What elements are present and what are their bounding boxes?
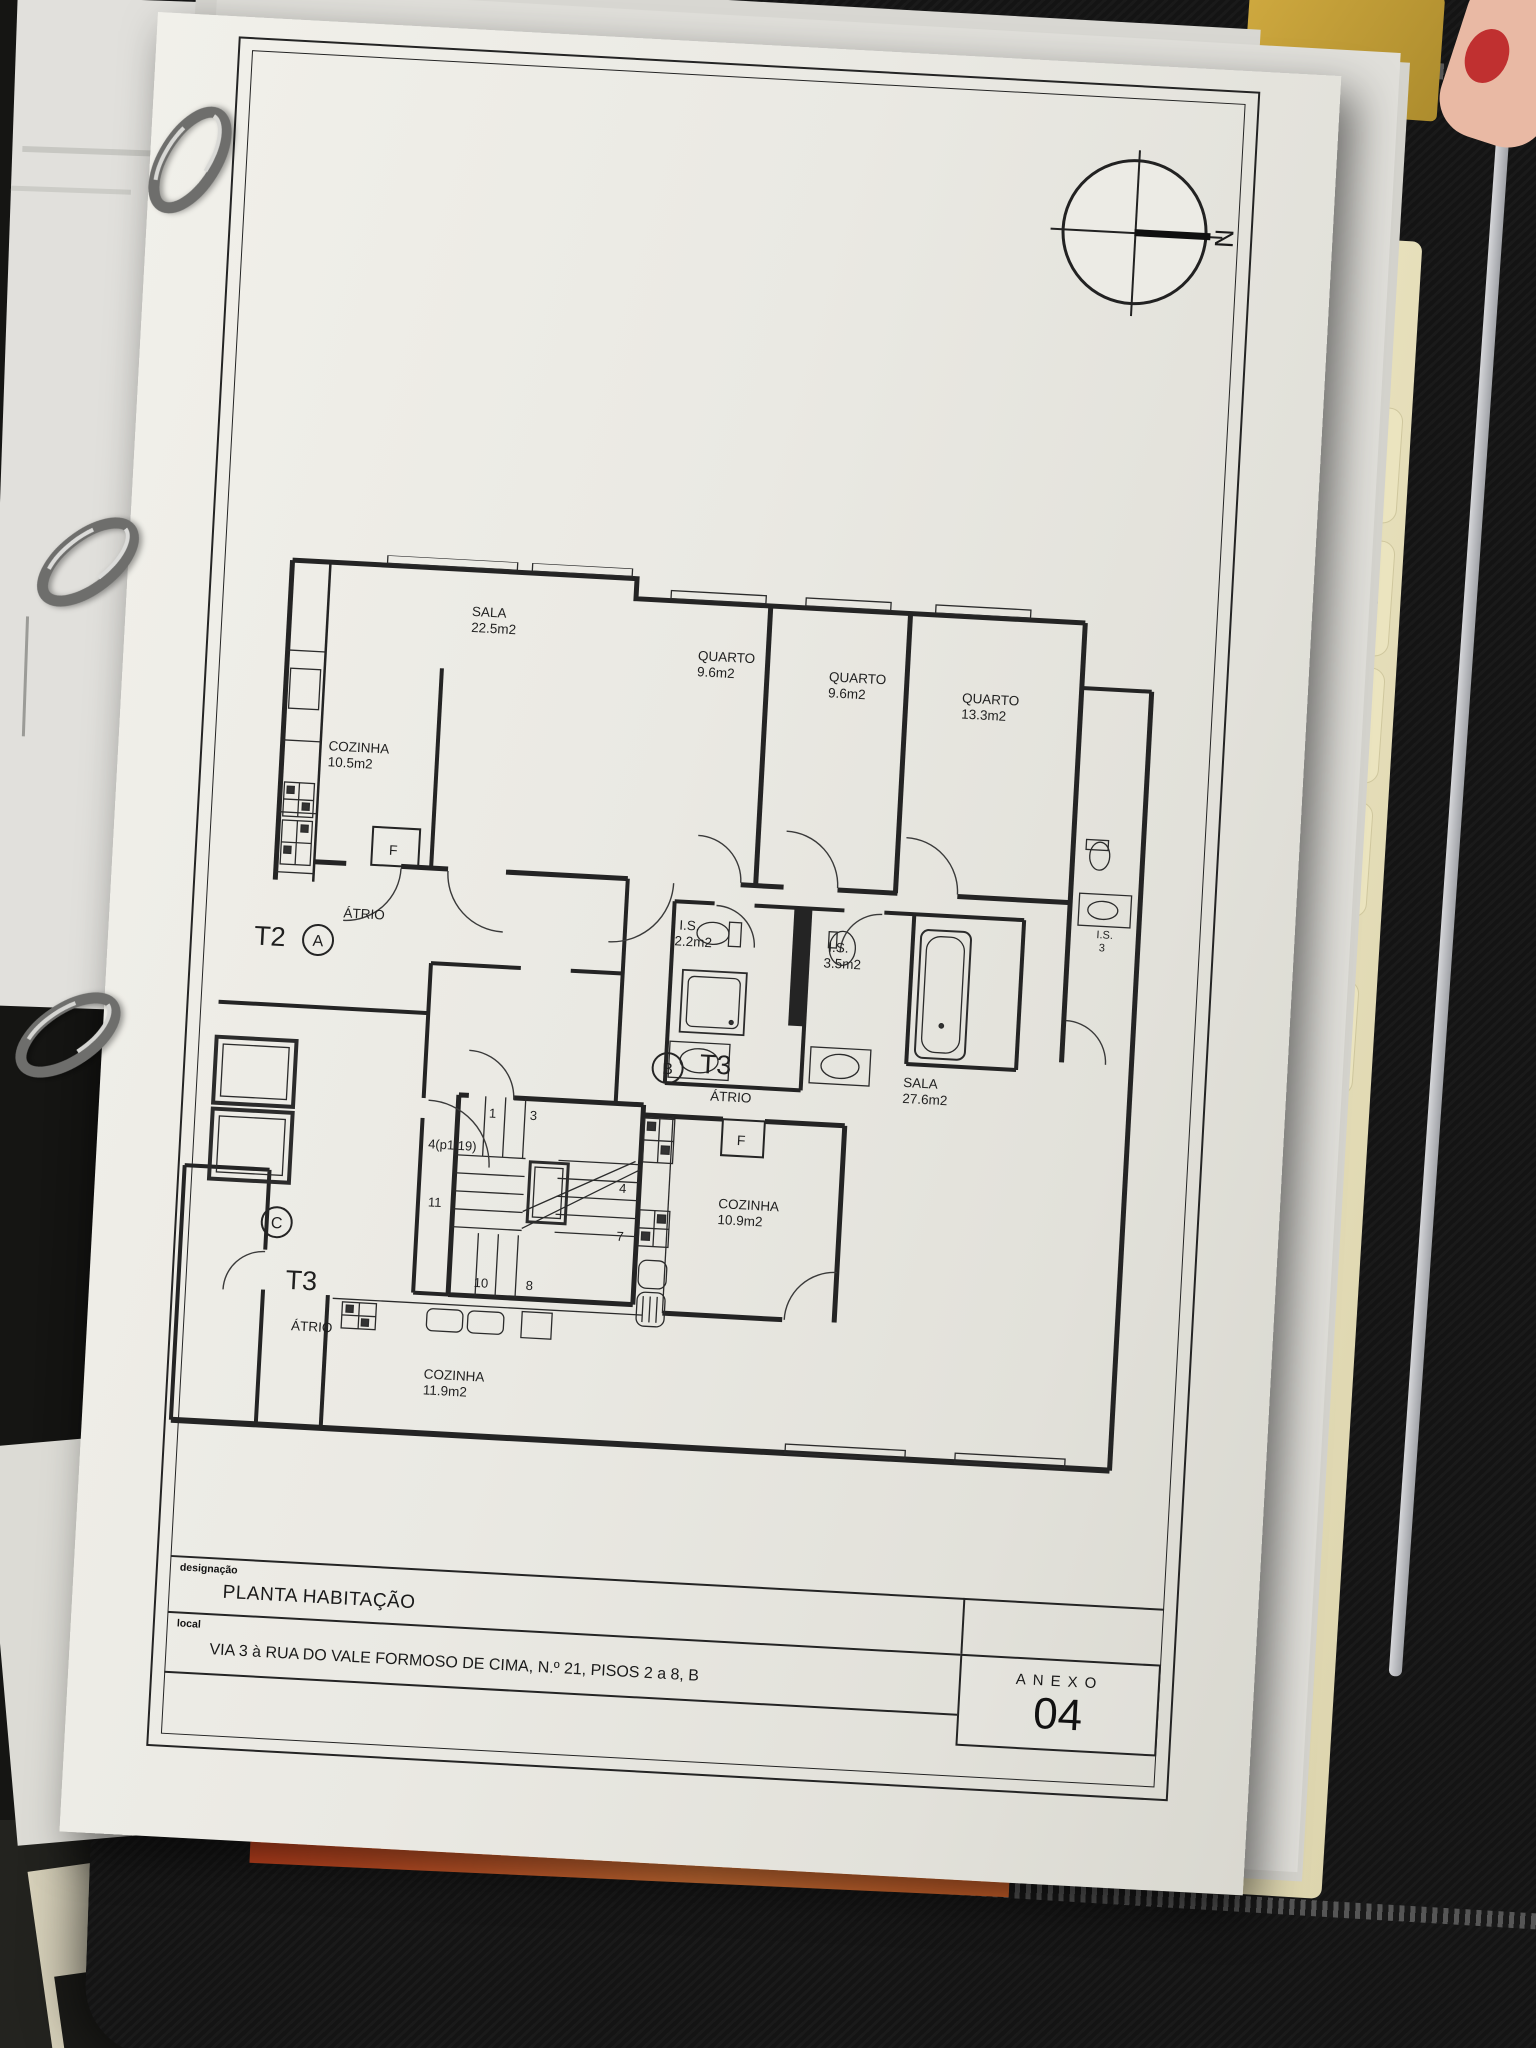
room-area-sala1: 22.5m2 xyxy=(471,620,517,637)
local-label: local xyxy=(177,1617,202,1630)
room-label-sala1: SALA xyxy=(472,604,507,621)
compass-north-arm xyxy=(1134,229,1210,240)
unit-type-t2: T2 xyxy=(253,921,286,953)
room-area-quarto3: 13.3m2 xyxy=(961,706,1007,723)
room-label-quarto3: QUARTO xyxy=(962,690,1020,708)
stair-number: 1 xyxy=(489,1106,497,1121)
anexo-number: 04 xyxy=(958,1685,1157,1746)
north-label: N xyxy=(1208,228,1240,248)
room-label-is3: I.S. xyxy=(1096,929,1113,942)
room-label-is2: I.S. xyxy=(828,940,849,956)
stair-number: 4(p1.19) xyxy=(428,1136,477,1154)
room-label-quarto1: QUARTO xyxy=(698,648,756,666)
photo-scene: Lundi Montag Lunes Ma Di M di day rcoled… xyxy=(0,0,1536,2048)
unit-type-t3c: T3 xyxy=(285,1265,318,1297)
room-label-is1: I.S. xyxy=(679,918,700,934)
unit-type-t3b: T3 xyxy=(699,1049,732,1081)
room-area-quarto1: 9.6m2 xyxy=(697,664,735,681)
stair-number: 10 xyxy=(473,1275,488,1291)
room-area-sala2: 27.6m2 xyxy=(902,1091,948,1108)
atrio-label-t2a: ÁTRIO xyxy=(343,905,385,922)
room-label-quarto2: QUARTO xyxy=(829,669,887,687)
floor-plan-drawing: SALA 22.5m2 QUARTO 9.6m2 QUARTO 9.6m2 QU… xyxy=(164,546,1172,1507)
atrio-label-t3c: ÁTRIO xyxy=(291,1318,333,1335)
unit-letter-b: B xyxy=(662,1061,674,1079)
room-area-cozinha2: 10.9m2 xyxy=(717,1212,763,1229)
room-area-is3: 3 xyxy=(1098,942,1105,954)
atrio-label-t3b: ÁTRIO xyxy=(710,1088,752,1105)
f-marker-t2a: F xyxy=(389,842,398,858)
stair-number: 3 xyxy=(529,1108,537,1123)
room-area-is2: 3.5m2 xyxy=(823,955,861,972)
room-area-cozinha3: 11.9m2 xyxy=(422,1382,467,1399)
room-label-sala2: SALA xyxy=(903,1075,938,1092)
anexo-box: ANEXO 04 xyxy=(955,1654,1161,1757)
stair-number: 11 xyxy=(428,1194,442,1210)
unit-letter-c: C xyxy=(270,1215,282,1233)
room-area-is1: 2.2m2 xyxy=(674,933,712,950)
floor-plan-page: N xyxy=(59,12,1341,1895)
unit-letter-a: A xyxy=(312,933,324,951)
f-marker-t3b: F xyxy=(736,1132,745,1148)
room-labels: SALA 22.5m2 QUARTO 9.6m2 QUARTO 9.6m2 QU… xyxy=(288,596,1129,1433)
room-area-quarto2: 9.6m2 xyxy=(828,685,866,702)
stair-number: 7 xyxy=(616,1229,624,1244)
stair-number: 4 xyxy=(619,1181,627,1196)
room-area-cozinha1: 10.5m2 xyxy=(327,754,373,771)
stair-number: 8 xyxy=(525,1278,533,1293)
